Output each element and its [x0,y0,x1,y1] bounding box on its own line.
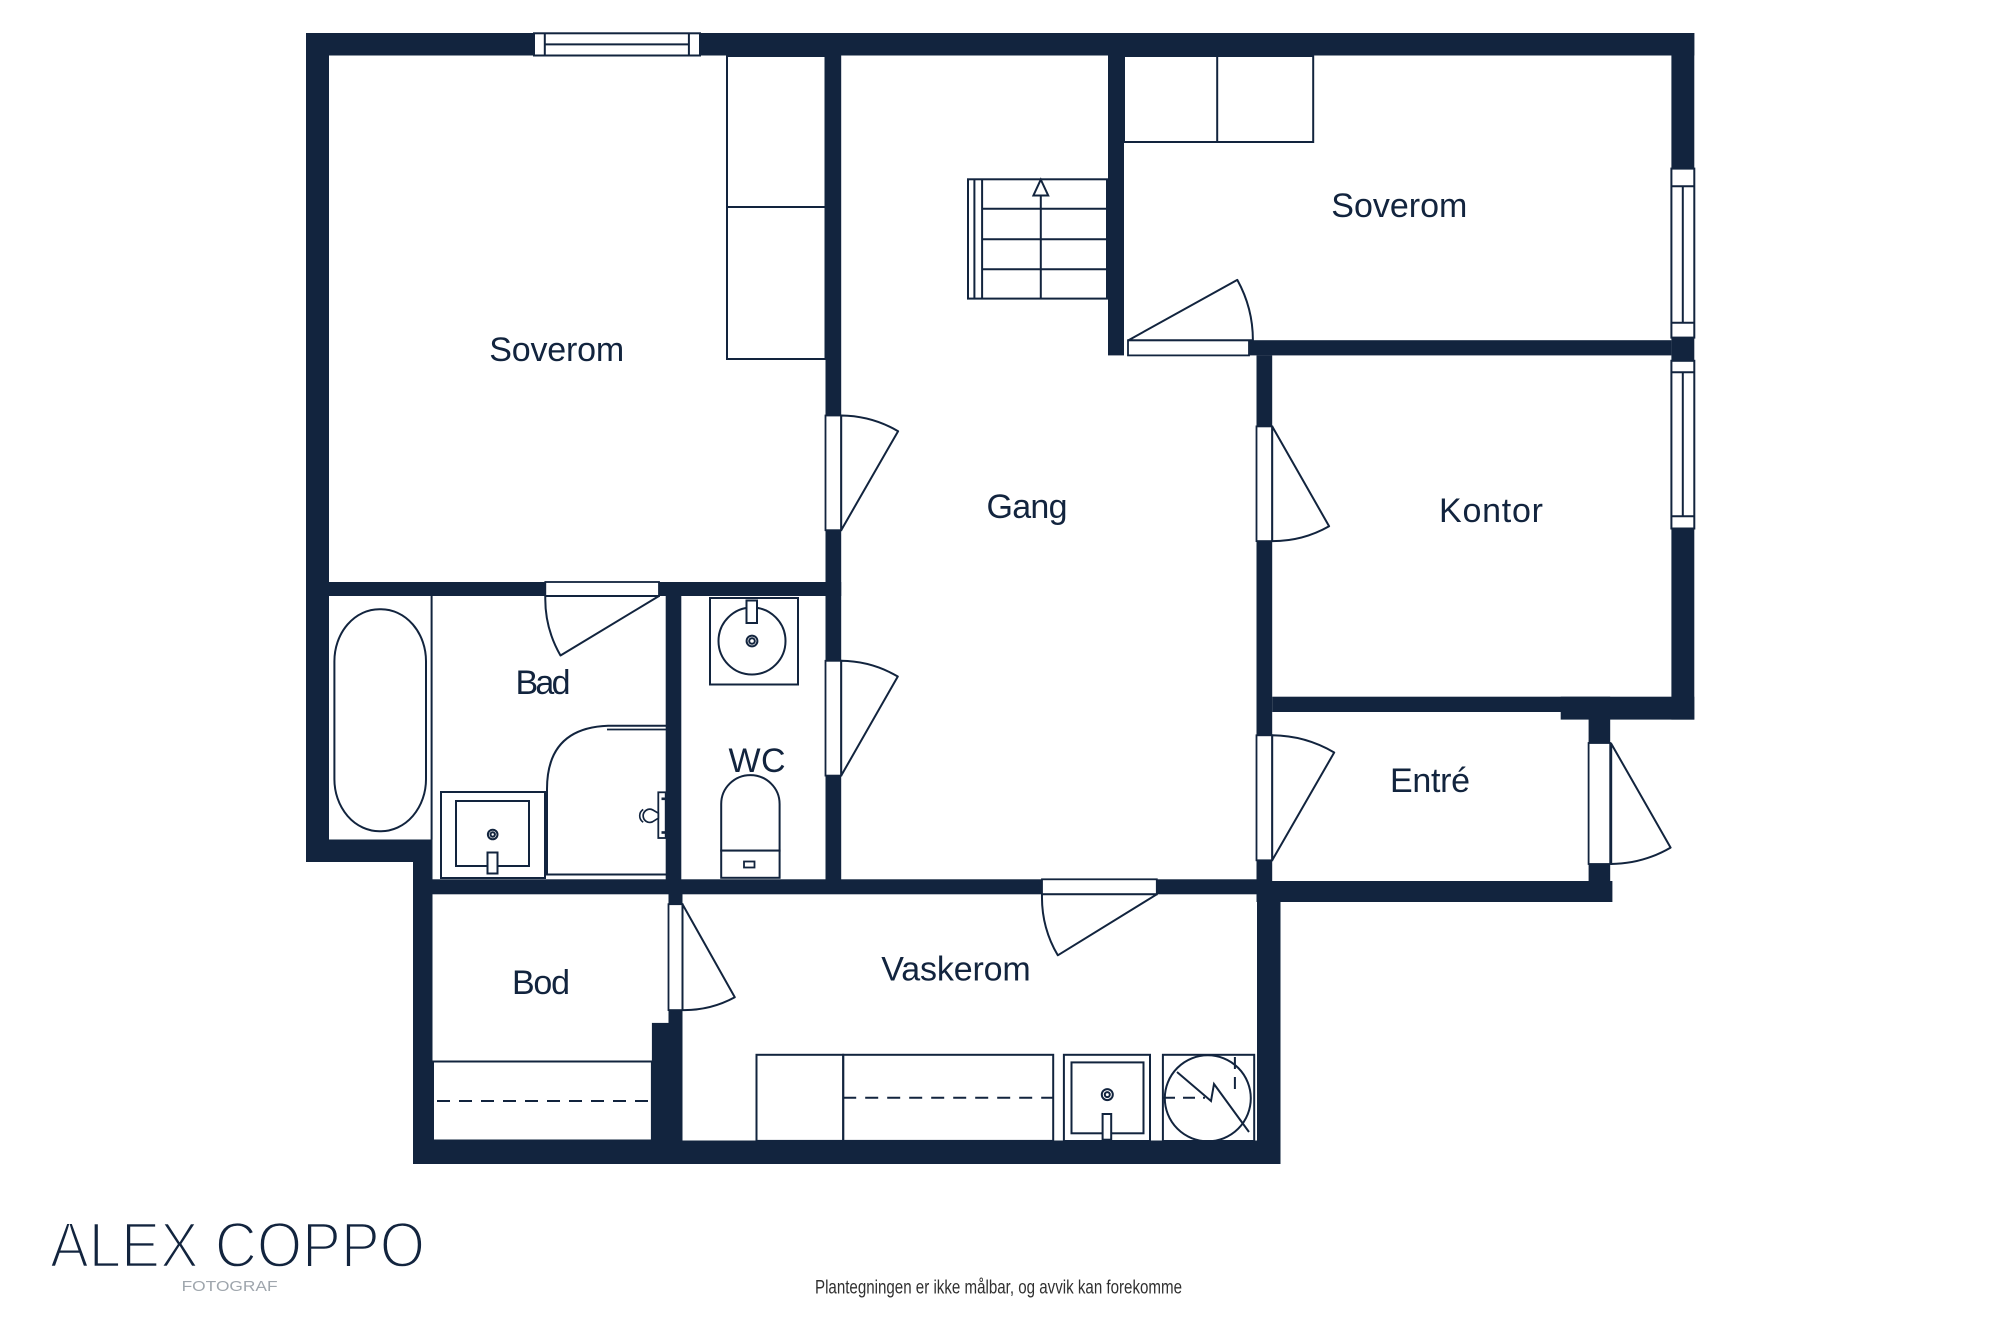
svg-text:Bad: Bad [516,664,571,702]
svg-text:Plantegningen er ikke målbar,: Plantegningen er ikke målbar, og avvik k… [815,1278,1182,1299]
svg-text:WC: WC [729,742,786,780]
svg-text:Kontor: Kontor [1439,492,1543,530]
svg-text:Entré: Entré [1390,762,1470,800]
svg-text:Gang: Gang [987,488,1068,526]
svg-text:Bod: Bod [512,964,570,1002]
svg-text:Vaskerom: Vaskerom [881,951,1031,989]
svg-text:Soverom: Soverom [1331,187,1467,225]
svg-text:ALEX COPPO: ALEX COPPO [50,1209,425,1281]
svg-text:Soverom: Soverom [489,331,624,369]
svg-text:FOTOGRAF: FOTOGRAF [182,1279,278,1295]
